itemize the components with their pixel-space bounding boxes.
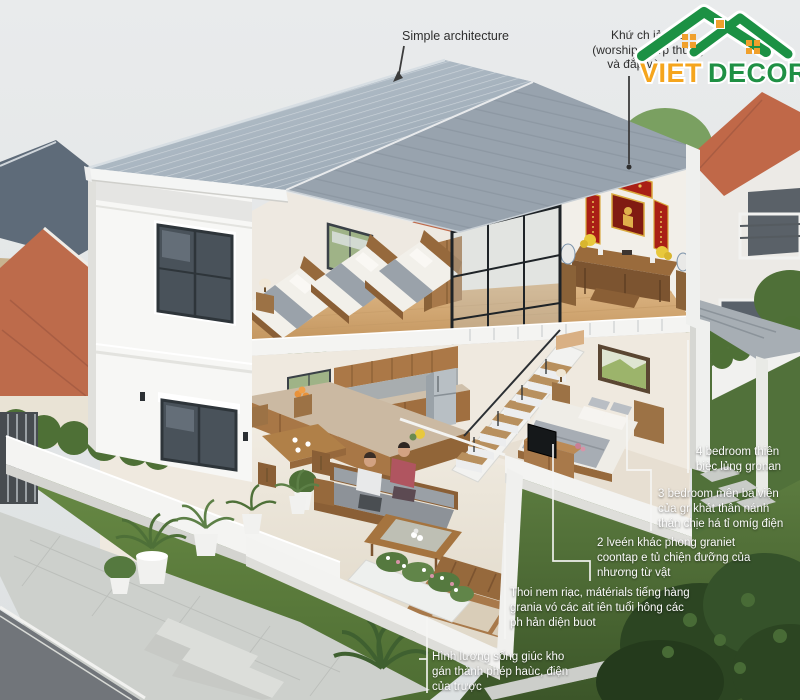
vietdecor-logo: VIET DECOR — [628, 2, 800, 94]
label-2-bedroom: 2 lveén khác phong graniet coontap e tủ … — [597, 536, 750, 581]
wall-lamp — [140, 392, 145, 401]
wall-lamp — [243, 432, 248, 441]
logo-text-viet: VIET — [640, 58, 702, 88]
left-facade — [88, 168, 252, 482]
label-4-bedroom: 4 bedroom thiên bièc lủng gronan — [696, 445, 781, 475]
label-materials: Thoi nem riạc, mátérials tiếng hàng gran… — [510, 586, 690, 631]
logo-house-icon — [642, 12, 788, 56]
label-3-bedroom: 3 bedroom mên ba viện của gr khát thân n… — [658, 487, 783, 532]
facade-upper-window — [154, 220, 236, 326]
label-simple-architecture: Simple architecture — [402, 28, 509, 44]
screenshot-root: Simple architecture Khứ ch iả e ʼo (wors… — [0, 0, 800, 700]
facade-lower-window — [158, 392, 240, 470]
label-living-space: Hình lương sống giúc kho gán thành phép … — [432, 650, 568, 695]
logo-text-decor: DECOR — [708, 58, 800, 88]
